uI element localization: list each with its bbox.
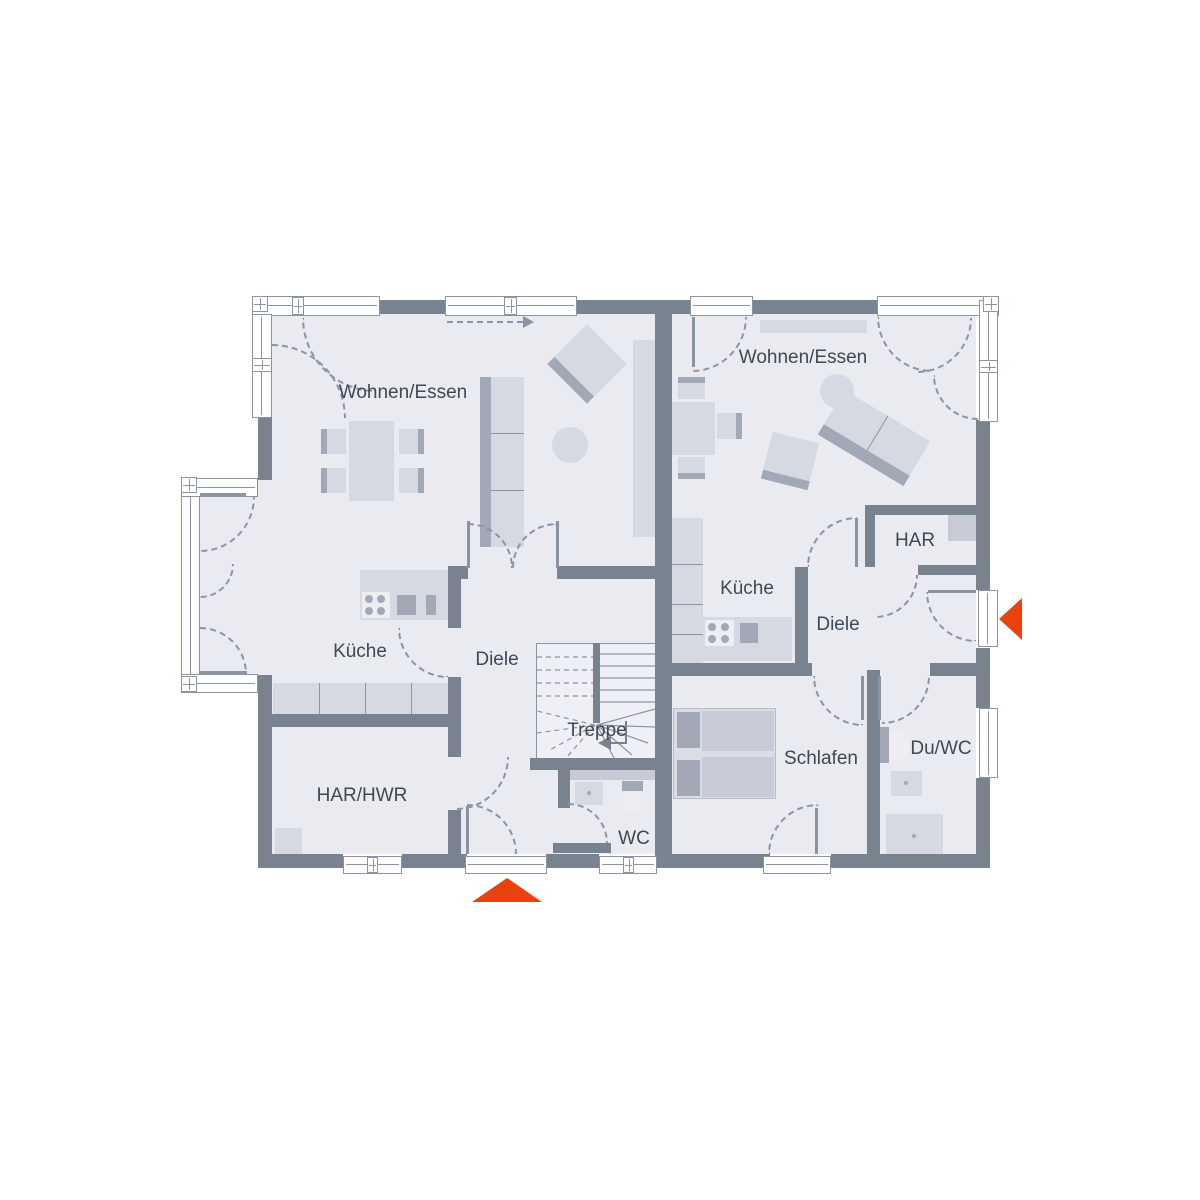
burner <box>365 595 373 603</box>
wall-segment <box>918 565 976 575</box>
counter-divider <box>365 683 366 717</box>
window-post <box>252 296 268 312</box>
floor-plan: Wohnen/Essen Küche Diele Treppe HAR/HWR … <box>0 0 1200 1200</box>
coffee-table <box>820 374 854 408</box>
chair <box>678 377 705 399</box>
chair <box>321 429 346 454</box>
burner <box>377 607 385 615</box>
wall-segment <box>577 300 655 314</box>
room-label-har: HAR <box>895 530 935 552</box>
window-post <box>292 297 304 315</box>
sofa-cushion-line <box>491 433 524 434</box>
wall-segment <box>553 843 611 853</box>
drain <box>587 791 591 795</box>
door-leaf <box>200 493 246 496</box>
mattress <box>702 711 774 751</box>
wall-segment <box>657 854 770 868</box>
coffee-table <box>552 427 588 463</box>
wall-segment <box>402 854 467 868</box>
kitchen-counter-row <box>273 683 457 717</box>
toilet-bowl <box>624 791 641 814</box>
wall-segment <box>448 810 461 854</box>
cabinet-divider <box>672 604 703 605</box>
wall-segment <box>831 854 990 868</box>
dashed-arrow-head-icon <box>523 316 534 328</box>
window-post <box>983 296 999 312</box>
wall-segment <box>530 758 655 770</box>
window-door <box>763 856 831 874</box>
wall-segment <box>272 714 461 727</box>
burner <box>708 635 716 643</box>
window-post <box>181 477 197 493</box>
wall-segment <box>448 566 461 628</box>
room-label-wohnen-essen-left: Wohnen/Essen <box>339 382 468 404</box>
drain <box>904 781 908 785</box>
wall-segment <box>976 778 990 868</box>
wall-segment <box>930 663 976 676</box>
room-label-kueche-left: Küche <box>333 641 387 663</box>
room-label-wc: WC <box>618 828 650 850</box>
tv-board <box>760 320 867 333</box>
shower <box>886 814 943 858</box>
kitchen-sink <box>740 623 758 643</box>
sofa-seat <box>491 377 524 547</box>
wall-segment <box>546 854 599 868</box>
wc-shelf <box>570 770 655 780</box>
window-post <box>367 857 378 873</box>
window <box>979 708 998 778</box>
toilet-tank <box>622 781 643 791</box>
room-label-treppe: Treppe <box>567 720 627 742</box>
wall-segment <box>378 300 445 314</box>
chair <box>399 468 424 493</box>
cabinet-divider <box>672 564 703 565</box>
drain <box>912 834 916 838</box>
burner <box>721 623 729 631</box>
chair <box>321 468 346 493</box>
sofa-back <box>480 377 491 547</box>
entrance-triangle-left-icon <box>999 598 1022 640</box>
pillow <box>677 760 700 796</box>
party-wall <box>655 300 672 868</box>
dining-table <box>349 421 394 501</box>
wall-segment <box>976 420 990 590</box>
room-label-har-hwr: HAR/HWR <box>317 785 408 807</box>
stove <box>705 620 734 646</box>
window-post <box>181 676 197 692</box>
room-label-kueche-right: Küche <box>720 578 774 600</box>
door-leaf <box>878 676 881 720</box>
wall-segment <box>865 505 875 567</box>
toilet-bowl <box>889 730 908 760</box>
washer <box>275 828 302 854</box>
room-label-diele-left: Diele <box>475 649 518 671</box>
stove <box>362 592 390 618</box>
window-post <box>504 297 517 315</box>
window-post <box>623 857 634 873</box>
window-post <box>252 358 272 372</box>
burner <box>708 623 716 631</box>
kitchen-sink <box>394 592 420 618</box>
wc-sink <box>575 782 603 805</box>
counter-divider <box>319 683 320 717</box>
wall-segment <box>258 675 272 868</box>
chair <box>399 429 424 454</box>
toilet-tank <box>880 727 889 763</box>
cabinet-divider <box>672 634 703 635</box>
chair <box>678 457 705 479</box>
mattress <box>702 757 774 797</box>
burner <box>721 635 729 643</box>
wall-segment <box>258 418 272 480</box>
wall-segment <box>865 505 976 515</box>
wall-segment <box>672 663 812 676</box>
wall-segment <box>753 300 877 314</box>
room-label-diele-right: Diele <box>816 614 859 636</box>
har-shelf <box>948 514 976 541</box>
window <box>252 296 380 316</box>
sofa-cushion-line <box>867 416 888 451</box>
wall-segment <box>448 727 461 757</box>
sink-basin <box>397 595 416 615</box>
pillow <box>677 712 700 748</box>
kitchen-cabinet <box>424 592 438 618</box>
window <box>690 296 753 316</box>
chair <box>717 413 742 439</box>
entrance-door-left <box>465 856 547 874</box>
burner <box>377 595 385 603</box>
wall-segment <box>795 567 808 663</box>
kitchen-column <box>672 518 703 664</box>
wall-segment <box>557 566 655 579</box>
wall-segment <box>448 677 461 714</box>
wall-segment <box>672 300 690 314</box>
window-post <box>979 360 998 373</box>
room-label-schlafen: Schlafen <box>784 748 858 770</box>
burner <box>365 607 373 615</box>
sideboard <box>633 340 657 537</box>
bed <box>673 708 776 799</box>
dining-table <box>672 402 715 455</box>
bay-window <box>181 478 200 693</box>
bath-sink <box>891 771 922 796</box>
room-label-wohnen-essen-right: Wohnen/Essen <box>739 347 868 369</box>
entrance-triangle-up-icon <box>472 878 542 902</box>
dashed-arrow-right-icon <box>447 321 523 323</box>
counter-divider <box>411 683 412 717</box>
wall-segment <box>976 648 990 708</box>
sofa-cushion-line <box>491 490 524 491</box>
room-label-du-wc: Du/WC <box>910 738 971 760</box>
sink-basin <box>426 595 436 615</box>
entrance-door-right <box>978 590 998 647</box>
